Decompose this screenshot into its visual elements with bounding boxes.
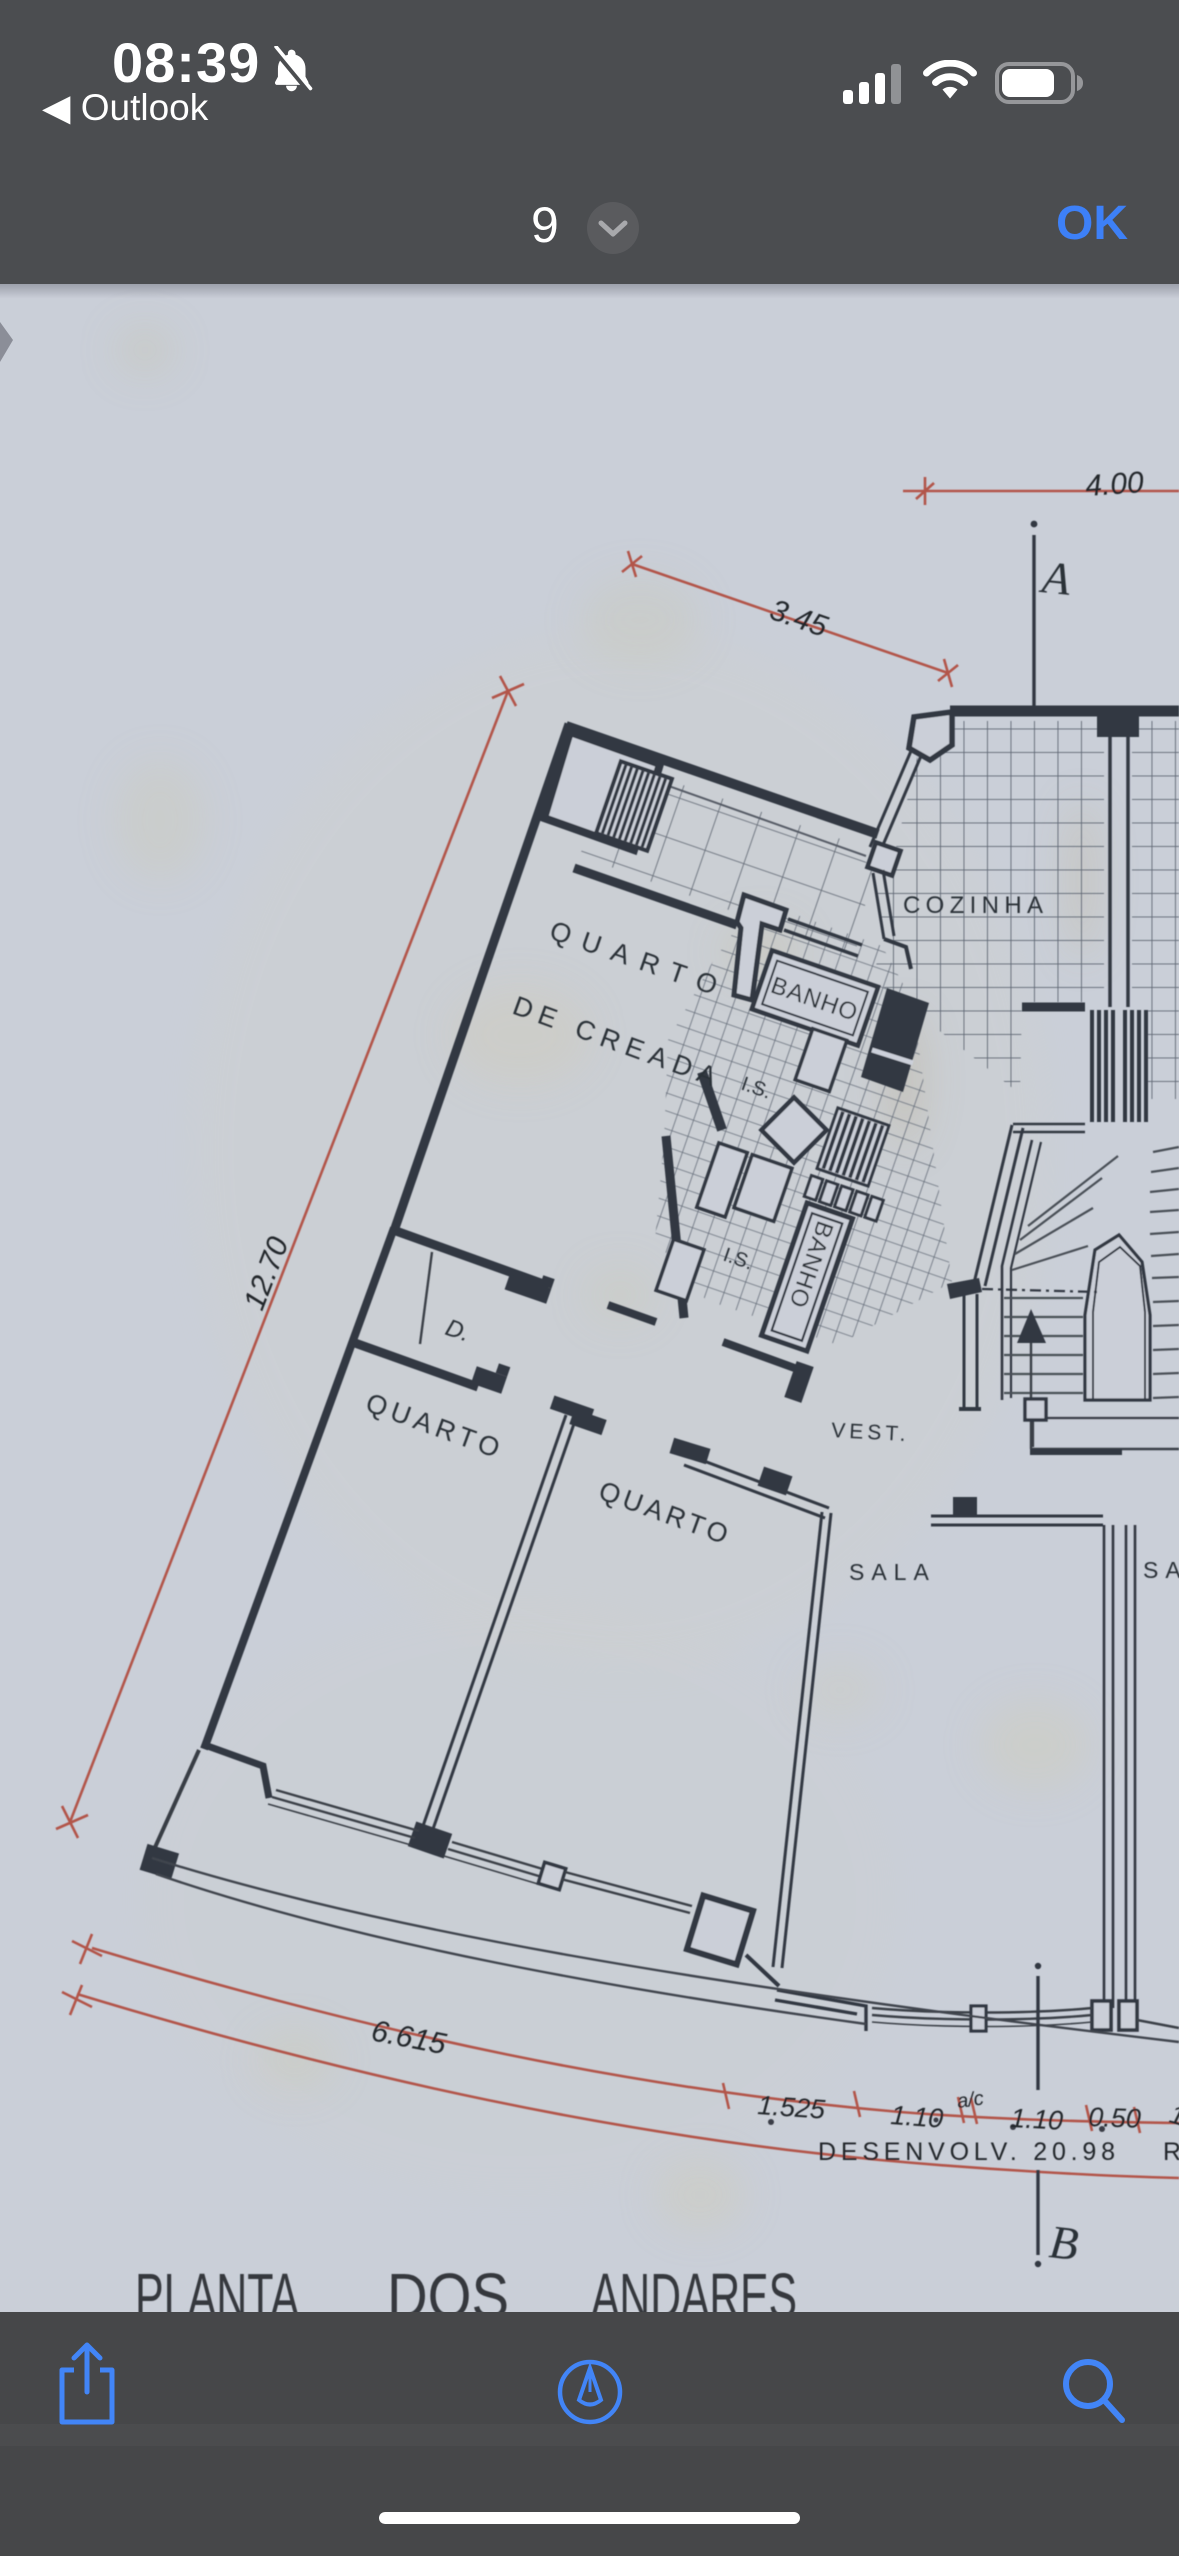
svg-text:1.10: 1.10	[890, 2100, 945, 2134]
svg-text:DOS: DOS	[387, 2260, 509, 2312]
svg-text:ANDARES: ANDARES	[591, 2260, 797, 2312]
svg-text:1.525: 1.525	[757, 2090, 827, 2125]
svg-text:VEST.: VEST.	[831, 1419, 910, 1446]
svg-text:DESENVOLV. 20.98: DESENVOLV. 20.98	[818, 2138, 1118, 2166]
svg-text:R: R	[1163, 2138, 1179, 2166]
svg-text:a/c: a/c	[956, 2087, 985, 2113]
svg-text:SALA: SALA	[849, 1559, 936, 1585]
svg-text:B: B	[1047, 2216, 1081, 2271]
svg-text:SA: SA	[1143, 1557, 1179, 1583]
svg-text:0.50: 0.50	[1088, 2102, 1142, 2134]
svg-text:4.00: 4.00	[1084, 466, 1145, 503]
svg-text:1.10: 1.10	[1010, 2103, 1064, 2136]
svg-text:PLANTA: PLANTA	[135, 2260, 299, 2312]
